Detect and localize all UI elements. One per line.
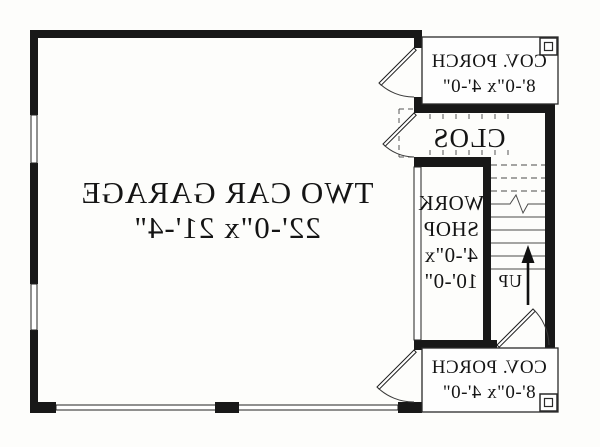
- door-swing-arc: [377, 387, 414, 402]
- workshop-label-group: WORK SHOP 4'-0"x 10'-0": [418, 191, 484, 293]
- wall-segment-top: [30, 30, 422, 38]
- wall-stairhall-right: [545, 103, 555, 350]
- door-bottom-porch-to-garage: [377, 350, 416, 402]
- closet-name-label: CLOS: [432, 123, 505, 153]
- wall-stairhall-left: [483, 157, 491, 350]
- up-arrow-head-icon: [522, 245, 535, 263]
- wall-segment-left-lower: [30, 330, 38, 402]
- workshop-dims-line1: 4'-0"x: [424, 243, 478, 267]
- workshop-name-line2: SHOP: [423, 217, 479, 241]
- wall-segment-right-a: [414, 38, 422, 48]
- closet-label-group: CLOS: [429, 123, 509, 153]
- floor-plan-drawing: TWO CAR GARAGE 22'-0"x 21'-4" WORK SHOP …: [0, 0, 600, 447]
- workshop-dims-line2: 10'-0": [424, 269, 478, 293]
- stairs-up-label: UP: [498, 271, 522, 291]
- porch-top-name-label: COV. PORCH: [431, 51, 547, 72]
- wall-corner-bottom-right: [398, 402, 422, 413]
- door-swing-arc: [379, 83, 414, 97]
- door-top-porch-to-garage: [379, 48, 416, 97]
- door-leaf-icon: [377, 350, 416, 389]
- stairs-up-label-group: UP: [498, 271, 522, 291]
- door-leaf-icon: [383, 113, 416, 146]
- garage-label-group: TWO CAR GARAGE: [81, 175, 374, 210]
- garage-dims-label: 22'-0"x 21'-4": [133, 210, 320, 245]
- porch-bottom-dims-label: 8'-0"x 4'-0": [442, 382, 535, 403]
- wall-segment-right-b: [414, 97, 422, 113]
- porch-top-dims-label: 8'-0"x 4'-0": [442, 76, 535, 97]
- stair-break-line: [491, 195, 545, 213]
- porch-post-inner-icon: [545, 399, 553, 407]
- wall-workshop-top: [414, 157, 491, 167]
- door-leaf-icon: [497, 309, 535, 347]
- workshop-name-line1: WORK: [418, 191, 484, 215]
- wall-corner-bottom-left: [30, 402, 56, 413]
- garage-name-label: TWO CAR GARAGE: [81, 175, 374, 210]
- porch-bottom-name-label: COV. PORCH: [431, 357, 547, 378]
- window-symbol-upper: [31, 115, 37, 163]
- door-closet-to-garage: [383, 113, 416, 157]
- garage-dims-group: 22'-0"x 21'-4": [133, 210, 320, 245]
- door-leaf-icon: [379, 48, 416, 85]
- floor-plan-page: TWO CAR GARAGE 22'-0"x 21'-4" WORK SHOP …: [0, 0, 600, 447]
- porch-post-inner-icon: [545, 43, 553, 51]
- wall-segment-left-upper: [30, 38, 38, 115]
- wall-post-bottom-center: [215, 402, 239, 413]
- wall-segment-left-middle: [30, 163, 38, 284]
- door-bottom-porch-to-stairhall: [497, 309, 549, 347]
- window-symbol-lower: [31, 284, 37, 330]
